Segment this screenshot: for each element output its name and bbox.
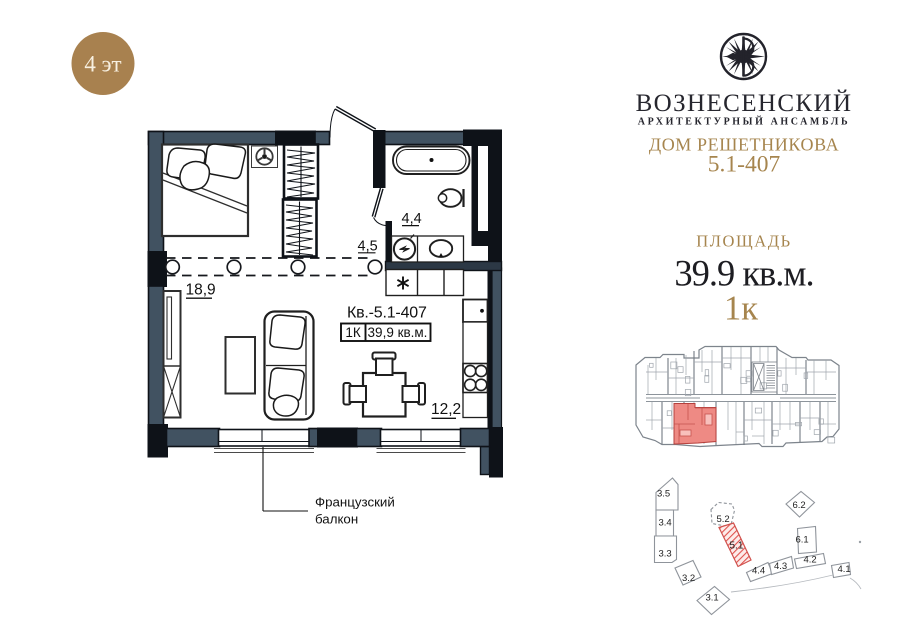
svg-text:4.2: 4.2 — [804, 555, 817, 566]
svg-text:АРХИТЕКТУРНЫЙ АНСАМБЛЬ: АРХИТЕКТУРНЫЙ АНСАМБЛЬ — [638, 116, 850, 128]
svg-text:балкон: балкон — [315, 512, 358, 527]
svg-text:Кв.-5.1-407: Кв.-5.1-407 — [347, 305, 427, 322]
svg-text:3.3: 3.3 — [659, 549, 672, 560]
svg-text:6.1: 6.1 — [796, 535, 809, 546]
svg-text:4,5: 4,5 — [358, 239, 378, 255]
svg-text:3.2: 3.2 — [682, 573, 695, 584]
svg-text:5.1: 5.1 — [730, 541, 744, 552]
svg-text:3.5: 3.5 — [657, 489, 670, 500]
svg-text:4.3: 4.3 — [774, 561, 787, 572]
svg-text:39.9 кв.м.: 39.9 кв.м. — [674, 253, 813, 294]
svg-text:4.1: 4.1 — [838, 564, 851, 575]
svg-text:5.1-407: 5.1-407 — [708, 152, 781, 178]
svg-text:4 эт: 4 эт — [84, 52, 121, 77]
svg-text:ВОЗНЕСЕНСКИЙ: ВОЗНЕСЕНСКИЙ — [636, 89, 853, 117]
svg-text:ПЛОЩАДЬ: ПЛОЩАДЬ — [696, 232, 792, 251]
svg-text:39,9 кв.м.: 39,9 кв.м. — [368, 325, 428, 340]
svg-text:5.2: 5.2 — [717, 514, 730, 525]
svg-text:3.4: 3.4 — [659, 518, 672, 529]
svg-text:Французский: Французский — [315, 495, 395, 510]
svg-text:18,9: 18,9 — [186, 282, 216, 299]
svg-text:1К: 1К — [345, 325, 361, 340]
svg-text:4.4: 4.4 — [752, 566, 765, 577]
svg-text:1к: 1к — [724, 290, 758, 328]
svg-text:3.1: 3.1 — [706, 593, 719, 604]
svg-text:4,4: 4,4 — [402, 211, 422, 227]
svg-text:12,2: 12,2 — [431, 401, 461, 418]
svg-text:6.2: 6.2 — [793, 500, 806, 511]
